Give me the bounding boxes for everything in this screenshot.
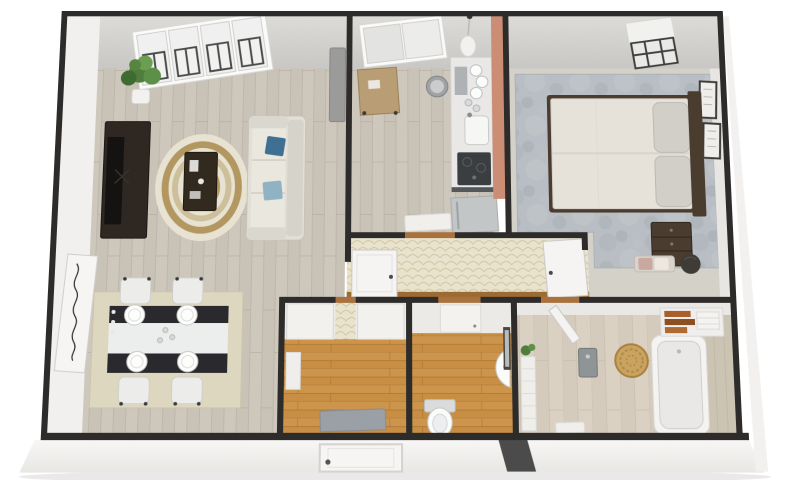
entry-door-reveal xyxy=(335,303,355,339)
bathtub xyxy=(651,335,710,435)
kitchen-table xyxy=(357,67,399,117)
hall-door-right xyxy=(543,239,588,298)
sofa xyxy=(246,116,306,240)
wall-box xyxy=(286,352,301,389)
dining-area xyxy=(89,277,243,408)
floorplan-render xyxy=(0,0,800,480)
cooktop xyxy=(457,152,491,185)
kitchen-door-mat xyxy=(405,213,452,231)
dining-table xyxy=(107,305,229,373)
front-door xyxy=(320,444,402,471)
pillow xyxy=(655,156,693,207)
blue-pillow xyxy=(265,136,286,157)
water-heater xyxy=(578,348,597,377)
towel-shelf xyxy=(660,308,724,336)
pillow xyxy=(653,103,690,153)
bedroom-window xyxy=(625,17,679,69)
wall-panel xyxy=(329,48,345,122)
faucet xyxy=(467,113,472,118)
rattan-basket xyxy=(615,344,649,377)
closet-door-right xyxy=(357,304,404,339)
fridge xyxy=(451,196,499,234)
door-handle xyxy=(389,275,393,279)
lightblue-pillow xyxy=(262,180,282,200)
sink xyxy=(465,116,489,145)
coffee-table xyxy=(183,152,217,210)
hall-door-left xyxy=(352,250,397,297)
wc-door-panel xyxy=(440,305,481,332)
bedroom-bench xyxy=(634,256,675,272)
dish-rack xyxy=(455,67,468,95)
bed xyxy=(547,91,707,216)
floorplan-scene xyxy=(0,11,800,480)
bath-mat xyxy=(556,422,585,433)
closet-door-left xyxy=(287,304,334,339)
trash-bin xyxy=(426,76,448,97)
kitchen-window xyxy=(359,15,447,67)
doormat xyxy=(320,409,386,432)
kitchen-counter xyxy=(451,57,494,192)
tv-console xyxy=(101,122,151,238)
wall-picture xyxy=(703,123,720,158)
floorplan-svg xyxy=(0,11,800,480)
